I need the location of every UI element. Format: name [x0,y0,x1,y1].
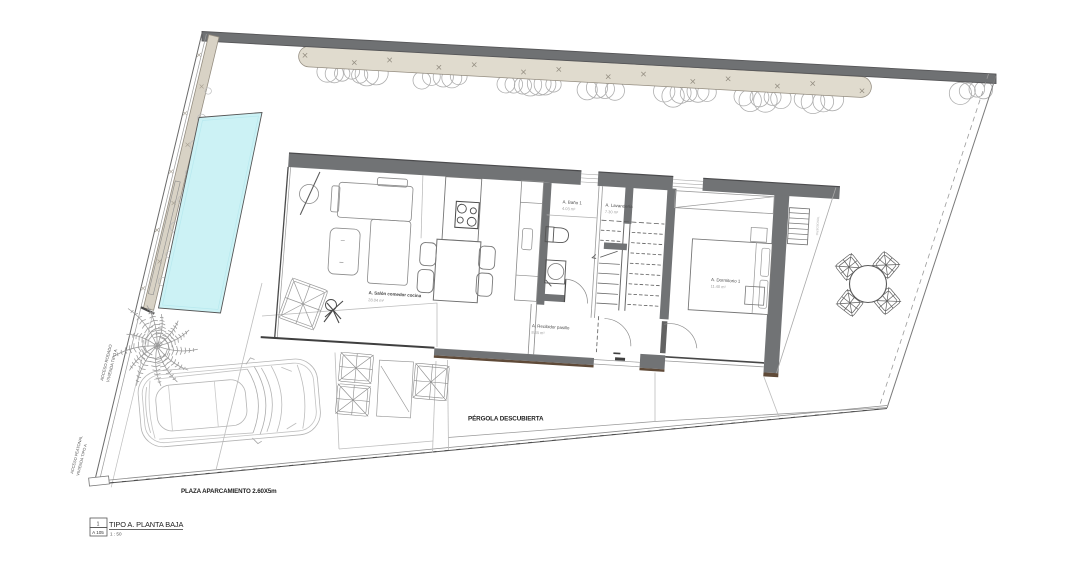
svg-text:PLAZA APARCAMIENTO 2.60X5m: PLAZA APARCAMIENTO 2.60X5m [181,488,277,495]
svg-text:1 : 50: 1 : 50 [110,532,122,537]
svg-text:4.03 m²: 4.03 m² [562,206,576,212]
svg-text:28.04 m²: 28.04 m² [368,297,385,303]
svg-text:8.65 m²: 8.65 m² [531,330,545,336]
svg-text:TIPO A. PLANTA BAJA: TIPO A. PLANTA BAJA [109,520,184,529]
svg-text:11.40 m²: 11.40 m² [711,283,727,289]
svg-text:PÉRGOLA DESCUBIERTA: PÉRGOLA DESCUBIERTA [468,414,544,423]
svg-text:A 105: A 105 [92,530,104,535]
svg-text:1: 1 [97,522,100,528]
svg-text:7.30 m²: 7.30 m² [605,209,619,215]
